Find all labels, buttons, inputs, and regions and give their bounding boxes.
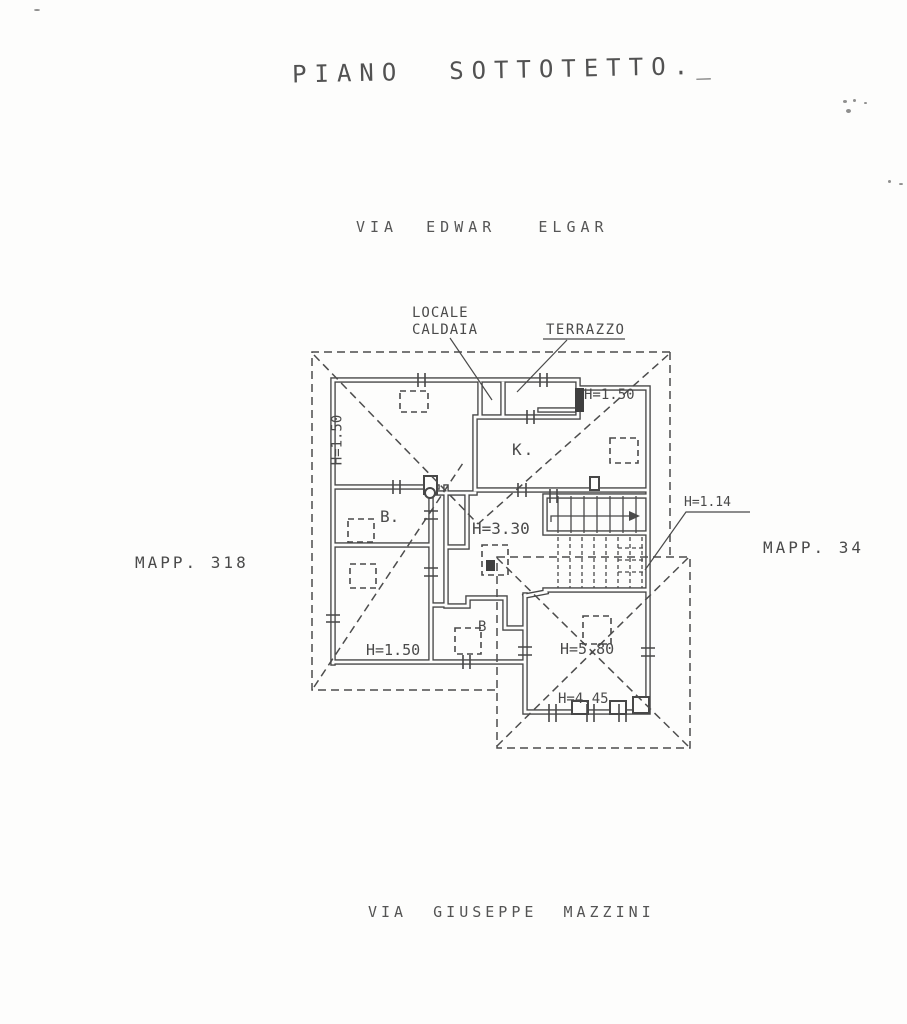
scan-speck (864, 102, 867, 104)
terrace-leader (517, 340, 567, 392)
scan-speck (853, 99, 856, 102)
height-label-hall: H=3.30 (472, 519, 530, 538)
height-label-bottom-left: H=1.50 (366, 641, 420, 659)
terrace-label: TERRAZZO (546, 322, 625, 338)
wall-sections (424, 388, 649, 714)
staircase (551, 496, 646, 588)
boiler-room-label: LOCALE CALDAIA (412, 305, 478, 339)
scan-speck (843, 100, 847, 103)
room-label-bath-main: B. (380, 507, 399, 526)
stair-arrow-head (629, 511, 640, 521)
flue-mark (486, 560, 495, 571)
scanned-floorplan-page: PIANO SOTTOTETTO._ VIA EDWAR ELGAR LOCAL… (0, 0, 907, 1024)
street-label-bottom: VIA GIUSEPPE MAZZINI (368, 903, 655, 921)
scan-speck (846, 109, 851, 113)
floor-plan-drawing (0, 0, 907, 1024)
height-label-wing-eaves: H=4.45 (558, 691, 609, 707)
height-label-top-right: H=1.50 (584, 387, 635, 403)
walls (333, 380, 648, 712)
scan-speck (34, 9, 40, 11)
height-label-wing-ridge: H=5.80 (560, 640, 614, 658)
stair-direction-line (551, 516, 629, 522)
room-label-kitchen: K. (512, 440, 535, 459)
street-label-top: VIA EDWAR ELGAR (356, 218, 609, 236)
height-label-under-stair: H=1.14 (684, 495, 731, 510)
h114-leader (645, 512, 750, 570)
parcel-label-34: MAPP. 34 (763, 538, 864, 557)
room-label-bath-small: B (478, 619, 486, 635)
scan-speck (888, 180, 891, 183)
scan-speck (899, 183, 903, 185)
parcel-label-318: MAPP. 318 (135, 553, 249, 572)
boiler-leader (450, 338, 492, 400)
height-label-left-room: H=1.50 (329, 415, 345, 466)
